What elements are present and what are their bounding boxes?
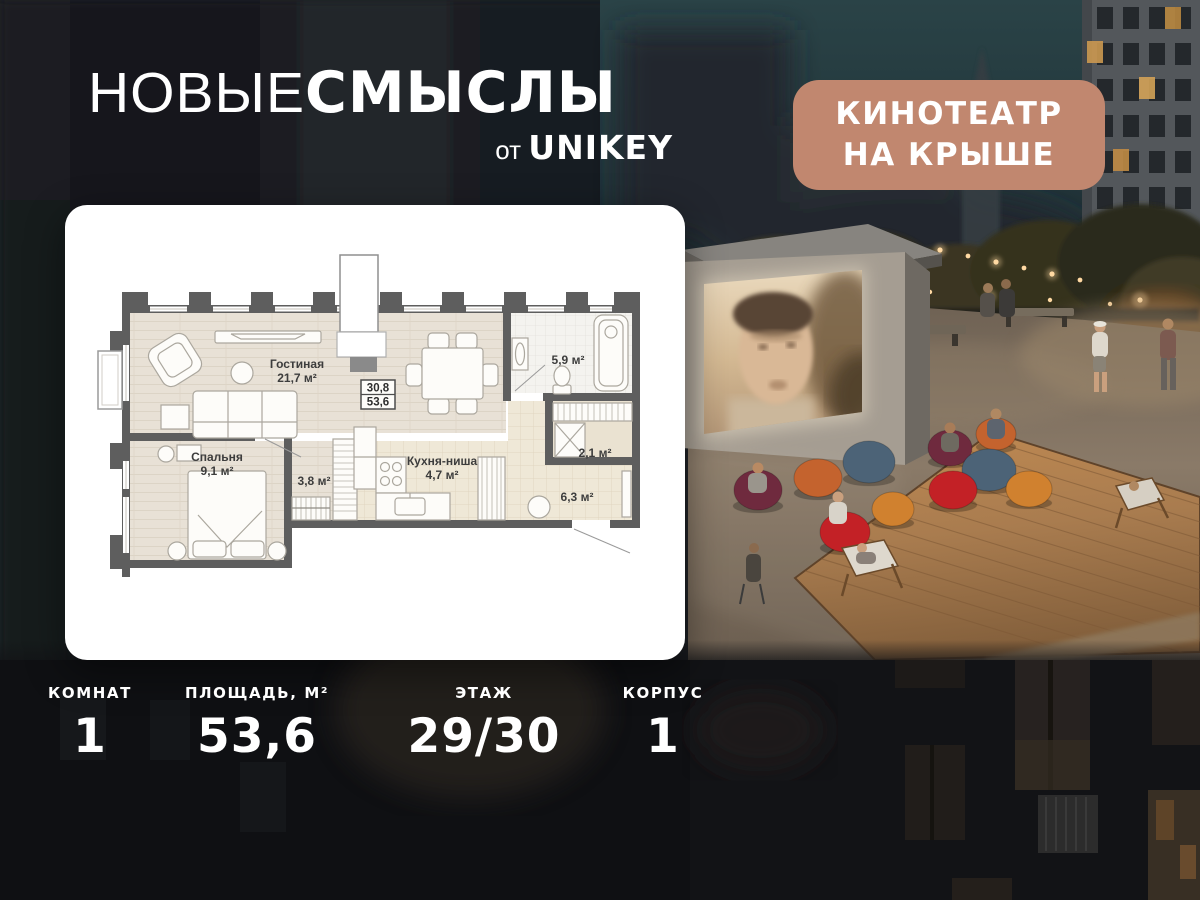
promo-banner: НОВЫЕСМЫСЛЫ от UNIKEY КИНОТЕАТР НА КРЫШЕ	[0, 0, 1200, 900]
total-area-value: 53,6	[367, 397, 389, 409]
clothes-rack	[292, 497, 330, 520]
sofa	[193, 391, 297, 438]
stat-area-value: 53,6	[168, 709, 346, 764]
bean-bag	[794, 459, 842, 497]
stat-area-label: ПЛОЩАДЬ, М²	[168, 684, 346, 702]
stove	[376, 457, 406, 493]
badge-line-2: НА КРЫШЕ	[843, 135, 1055, 176]
apartment-stats: КОМНАТ 1 ПЛОЩАДЬ, М² 53,6 ЭТАЖ 29/30 КОР…	[0, 684, 760, 794]
room-label-kitchen: Кухня-ниша	[407, 454, 478, 468]
room-area-bathroom: 5,9 м²	[552, 353, 585, 367]
room-area-bedroom: 9,1 м²	[201, 464, 234, 478]
floorplan-card: 30,8 53,6 Гостиная 21,7 м² Спальня 9,1 м…	[65, 205, 685, 660]
bean-bag	[1006, 471, 1052, 507]
room-area-living: 21,7 м²	[277, 371, 317, 385]
room-area-corridor: 3,8 м²	[298, 474, 331, 488]
logo: НОВЫЕСМЫСЛЫ от UNIKEY	[88, 64, 673, 167]
shaft	[337, 255, 386, 372]
rooftop-cinema-badge: КИНОТЕАТР НА КРЫШЕ	[793, 80, 1105, 190]
fridge-wardrobe	[478, 457, 505, 520]
logo-subtitle: от UNIKEY	[88, 128, 673, 167]
room-area-hall: 6,3 м²	[561, 490, 594, 504]
living-area-value: 30,8	[367, 383, 390, 395]
bed	[188, 471, 266, 559]
badge-line-1: КИНОТЕАТР	[835, 94, 1062, 135]
room-label-bedroom: Спальня	[191, 450, 243, 464]
area-summary-box: 30,8 53,6	[361, 380, 395, 409]
room-area-wardrobe: 2,1 м²	[579, 446, 612, 460]
logo-subtitle-prefix: от	[495, 135, 528, 165]
mirror	[158, 446, 174, 462]
pouf	[528, 496, 550, 518]
stat-building-value: 1	[596, 709, 730, 764]
stat-area: ПЛОЩАДЬ, М² 53,6	[168, 684, 346, 764]
dining-table	[422, 348, 483, 399]
coffee-table	[231, 362, 253, 384]
bean-bag	[872, 492, 914, 526]
logo-brand-name: UNIKEY	[528, 128, 673, 167]
logo-title: НОВЫЕСМЫСЛЫ	[88, 64, 673, 124]
stat-building: КОРПУС 1	[596, 684, 730, 764]
room-area-kitchen: 4,7 м²	[426, 468, 459, 482]
corridor-wardrobe	[333, 439, 357, 520]
room-label-living: Гостиная	[270, 357, 324, 371]
bean-bag	[929, 471, 977, 509]
stat-floor: ЭТАЖ 29/30	[388, 684, 580, 764]
stat-rooms-label: КОМНАТ	[28, 684, 152, 702]
side-table	[161, 405, 189, 429]
stat-rooms-value: 1	[28, 709, 152, 764]
bean-bag	[843, 441, 895, 483]
stat-rooms: КОМНАТ 1	[28, 684, 152, 764]
nightstand	[168, 542, 186, 560]
hall-cabinet	[622, 471, 631, 517]
stat-building-label: КОРПУС	[596, 684, 730, 702]
stat-floor-value: 29/30	[388, 709, 580, 764]
tv-console	[215, 331, 321, 343]
logo-title-light: НОВЫЕ	[88, 61, 305, 125]
floorplan: 30,8 53,6 Гостиная 21,7 м² Спальня 9,1 м…	[65, 205, 685, 660]
logo-title-bold: СМЫСЛЫ	[305, 60, 617, 126]
nightstand	[268, 542, 286, 560]
stat-floor-label: ЭТАЖ	[388, 684, 580, 702]
